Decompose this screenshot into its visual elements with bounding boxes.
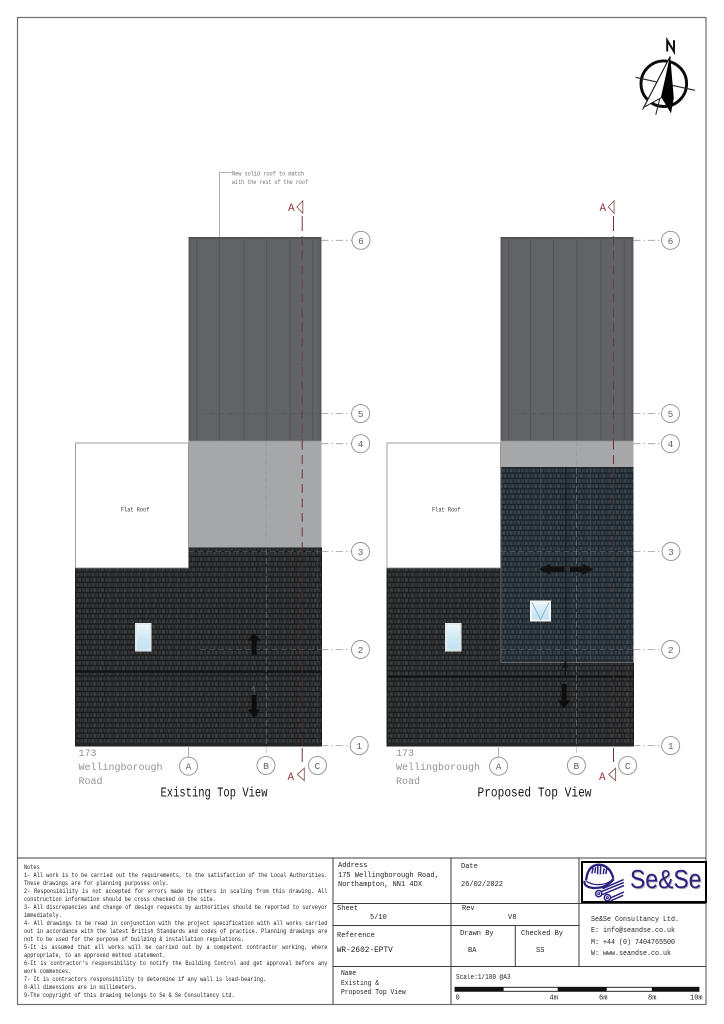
svg-text:8m: 8m — [648, 995, 656, 1003]
svg-text:6m: 6m — [599, 995, 607, 1003]
svg-text:0: 0 — [456, 995, 460, 1003]
svg-text:10m: 10m — [690, 995, 703, 1003]
svg-text:4m: 4m — [550, 995, 558, 1003]
